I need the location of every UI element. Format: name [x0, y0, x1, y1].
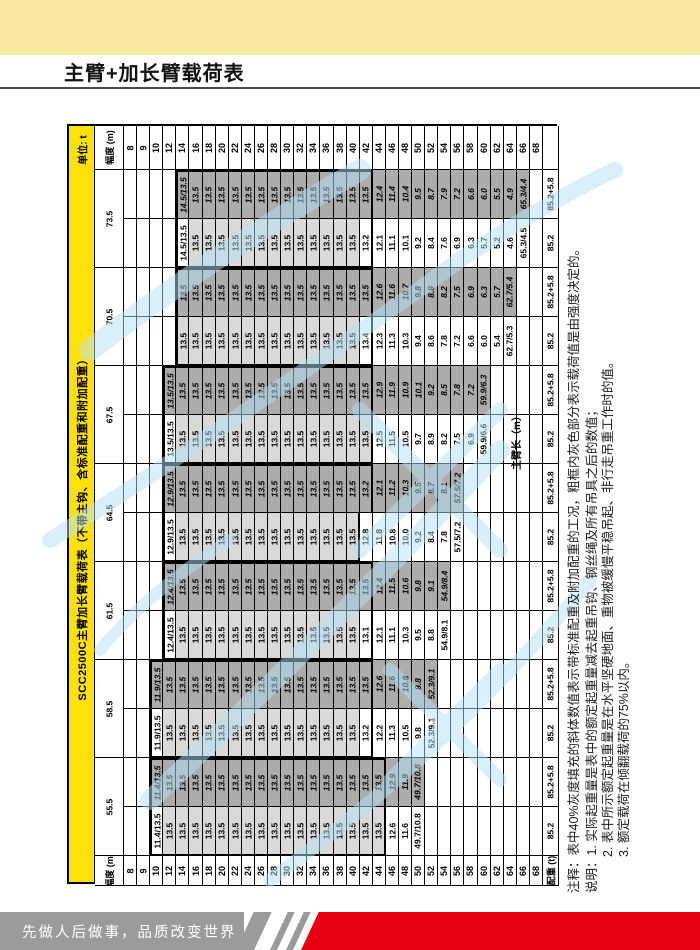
capacity-cell: 13.2 [360, 464, 373, 513]
capacity-cell: 13.5 [242, 562, 255, 611]
capacity-cell: 13.5 [334, 170, 347, 219]
capacity-cell: 11.9/13.5 [150, 660, 163, 709]
capacity-cell: 13.5 [281, 807, 294, 856]
capacity-cell: 12.6 [386, 807, 399, 856]
capacity-row-61.5-added-cw: 12.4/13.513.513.513.513.513.513.513.513.… [124, 562, 559, 611]
capacity-cell [530, 562, 543, 611]
capacity-cell: 13.5 [176, 562, 189, 611]
capacity-cell [137, 219, 150, 268]
capacity-cell: 49.7/10.8 [412, 758, 425, 807]
capacity-cell: 11.3 [386, 317, 399, 366]
boom-length-value: 58.5 [95, 660, 124, 758]
radius-value: 62 [491, 856, 504, 886]
capacity-cell [163, 317, 176, 366]
capacity-cell: 13.5 [203, 660, 216, 709]
capacity-cell: 52.3/9.1 [425, 660, 438, 709]
capacity-cell: 13.5 [360, 758, 373, 807]
radius-value: 52 [425, 856, 438, 886]
radius-value: 14 [176, 126, 189, 170]
capacity-cell: 13.5 [189, 709, 202, 758]
capacity-cell: 13.5 [268, 415, 281, 464]
radius-value: 24 [242, 856, 255, 886]
capacity-cell: 13.5 [229, 268, 242, 317]
capacity-cell: 13.5 [334, 709, 347, 758]
capacity-cell [438, 807, 451, 856]
capacity-cell: 13.5 [294, 366, 307, 415]
radius-value: 48 [399, 126, 412, 170]
capacity-cell: 13.5 [268, 366, 281, 415]
capacity-cell: 12.9/13.5 [163, 464, 176, 513]
capacity-cell: 6.6 [464, 170, 477, 219]
capacity-cell: 9.4 [412, 317, 425, 366]
capacity-cell [464, 513, 477, 562]
capacity-cell: 13.5 [203, 366, 216, 415]
capacity-cell: 13.5 [203, 611, 216, 660]
capacity-cell [451, 611, 464, 660]
capacity-cell [504, 562, 517, 611]
capacity-cell: 8.2 [438, 415, 451, 464]
capacity-cell [491, 807, 504, 856]
capacity-cell: 13.5 [176, 366, 189, 415]
capacity-cell: 11.2 [386, 464, 399, 513]
capacity-cell: 12.9 [373, 366, 386, 415]
capacity-cell: 57.5/7.2 [451, 464, 464, 513]
capacity-cell: 6.3 [464, 219, 477, 268]
capacity-cell: 13.5 [216, 268, 229, 317]
capacity-cell: 9.2 [425, 366, 438, 415]
capacity-cell: 13.5 [216, 317, 229, 366]
counterweight-value: 85.2 [543, 415, 559, 464]
load-chart-table: 单位: t SCC2500C主臂加长臂载荷表（不带主钩、含标准配重和附加配重） … [67, 124, 557, 884]
capacity-cell [530, 464, 543, 513]
capacity-cell: 13.5 [320, 758, 333, 807]
counterweight-value: 85.2+5.8 [543, 170, 559, 219]
capacity-grid: 8910121416182022242628303234363840424446… [124, 126, 559, 882]
capacity-cell [137, 317, 150, 366]
radius-value: 60 [478, 126, 491, 170]
capacity-cell [451, 807, 464, 856]
capacity-cell: 10.1 [399, 219, 412, 268]
capacity-cell: 13.5 [334, 317, 347, 366]
capacity-cell: 13.5 [255, 611, 268, 660]
capacity-cell: 13.5 [347, 366, 360, 415]
capacity-cell [150, 170, 163, 219]
capacity-cell [478, 709, 491, 758]
capacity-cell: 13.4 [360, 317, 373, 366]
capacity-cell: 13.5 [307, 513, 320, 562]
capacity-cell: 13.5 [255, 317, 268, 366]
radius-value: 40 [347, 856, 360, 886]
capacity-cell: 7.9 [438, 170, 451, 219]
capacity-cell: 13.5 [176, 317, 189, 366]
capacity-cell [530, 758, 543, 807]
capacity-cell: 5.7 [478, 219, 491, 268]
capacity-cell: 65.3/4.4 [517, 170, 530, 219]
capacity-cell: 10.5 [399, 709, 412, 758]
capacity-cell: 13.5 [242, 660, 255, 709]
radius-value: 16 [189, 856, 202, 886]
capacity-cell: 8.2 [438, 268, 451, 317]
radius-value: 62 [491, 126, 504, 170]
capacity-cell [124, 268, 137, 317]
capacity-cell: 13.5 [320, 415, 333, 464]
capacity-cell: 10.9 [399, 366, 412, 415]
capacity-cell: 13.5 [229, 464, 242, 513]
capacity-cell: 4.9 [504, 170, 517, 219]
capacity-cell [517, 660, 530, 709]
capacity-cell: 13.5 [281, 562, 294, 611]
boom-length-label: 主臂长（m） [506, 413, 524, 467]
capacity-cell: 13.5 [294, 170, 307, 219]
capacity-cell [491, 660, 504, 709]
capacity-cell [491, 611, 504, 660]
capacity-cell: 9.8 [412, 660, 425, 709]
capacity-cell: 13.5 [242, 464, 255, 513]
capacity-cell: 13.5 [347, 758, 360, 807]
capacity-cell: 13.5 [203, 807, 216, 856]
capacity-cell: 11.6 [386, 660, 399, 709]
capacity-cell [530, 170, 543, 219]
capacity-cell: 13.5 [242, 170, 255, 219]
counterweight-value: 85.2+5.8 [543, 758, 559, 807]
capacity-cell: 13.5 [189, 170, 202, 219]
capacity-cell: 13.5 [242, 758, 255, 807]
capacity-cell: 9.8 [412, 709, 425, 758]
capacity-cell: 13.5 [320, 660, 333, 709]
capacity-cell: 8.6 [425, 317, 438, 366]
capacity-cell [137, 170, 150, 219]
capacity-cell: 13.5 [281, 513, 294, 562]
capacity-cell [517, 709, 530, 758]
capacity-cell: 13.5 [216, 807, 229, 856]
capacity-cell: 12.4 [373, 170, 386, 219]
capacity-cell: 14.5/13.5 [176, 219, 189, 268]
radius-value: 56 [451, 856, 464, 886]
capacity-cell: 13.5 [229, 219, 242, 268]
capacity-cell: 7.2 [464, 366, 477, 415]
capacity-cell [530, 611, 543, 660]
capacity-cell: 13.5 [268, 464, 281, 513]
capacity-cell [150, 268, 163, 317]
radius-value: 60 [478, 856, 491, 886]
radius-header-row: 8910121416182022242628303234363840424446… [124, 856, 559, 886]
capacity-cell: 13.5 [216, 513, 229, 562]
capacity-cell [478, 660, 491, 709]
capacity-cell [137, 366, 150, 415]
capacity-cell [517, 562, 530, 611]
capacity-cell: 13.5 [176, 415, 189, 464]
capacity-cell: 13.5 [229, 415, 242, 464]
capacity-cell: 13.5 [163, 709, 176, 758]
capacity-cell: 13.5 [320, 513, 333, 562]
capacity-cell: 13.5 [242, 219, 255, 268]
capacity-cell: 11.4/13.5 [150, 807, 163, 856]
capacity-cell: 13.5 [242, 317, 255, 366]
capacity-cell [150, 464, 163, 513]
capacity-cell: 13.5 [176, 513, 189, 562]
capacity-cell [504, 464, 517, 513]
boom-length-value: 64.5 [95, 464, 124, 562]
capacity-cell: 13.5 [268, 807, 281, 856]
capacity-cell [530, 709, 543, 758]
capacity-cell: 12.6 [373, 268, 386, 317]
capacity-cell: 57.5/7.2 [451, 513, 464, 562]
capacity-cell [491, 415, 504, 464]
capacity-cell [137, 562, 150, 611]
capacity-cell: 5.7 [491, 268, 504, 317]
capacity-cell: 13.5 [294, 758, 307, 807]
capacity-cell: 12.5 [373, 415, 386, 464]
capacity-cell: 59.9/6.3 [478, 366, 491, 415]
capacity-cell: 13.5 [320, 611, 333, 660]
capacity-cell: 7.2 [451, 170, 464, 219]
capacity-cell: 13.5 [360, 807, 373, 856]
capacity-cell: 13.5 [268, 660, 281, 709]
counterweight-value: 85.2 [543, 219, 559, 268]
capacity-cell: 13.5 [320, 366, 333, 415]
capacity-cell: 13.5 [294, 464, 307, 513]
capacity-cell: 9.8 [412, 268, 425, 317]
capacity-cell [517, 464, 530, 513]
capacity-cell [150, 415, 163, 464]
capacity-cell: 12.4/13.5 [163, 611, 176, 660]
capacity-cell [504, 709, 517, 758]
radius-value: 22 [229, 856, 242, 886]
capacity-cell: 9.2 [412, 513, 425, 562]
capacity-cell: 13.5 [307, 170, 320, 219]
capacity-cell [425, 758, 438, 807]
boom-length-value: 61.5 [95, 562, 124, 660]
capacity-cell: 7.5 [451, 415, 464, 464]
capacity-cell: 11.9 [399, 758, 412, 807]
capacity-cell: 13.5 [347, 170, 360, 219]
capacity-cell: 11.4/13.5 [150, 758, 163, 807]
capacity-cell [464, 660, 477, 709]
capacity-cell: 13.5 [216, 415, 229, 464]
counterweight-value: 85.2 [543, 807, 559, 856]
capacity-cell: 13.5 [320, 562, 333, 611]
capacity-cell: 13.5 [281, 660, 294, 709]
capacity-cell [124, 758, 137, 807]
capacity-cell: 13.5 [307, 219, 320, 268]
radius-value: 68 [530, 856, 543, 886]
capacity-cell: 13.5 [189, 268, 202, 317]
capacity-cell: 13.5 [189, 219, 202, 268]
capacity-cell: 4.6 [504, 219, 517, 268]
radius-value: 58 [464, 856, 477, 886]
capacity-cell: 13.5 [334, 415, 347, 464]
capacity-cell: 12.9 [386, 758, 399, 807]
capacity-cell: 13.5 [203, 268, 216, 317]
capacity-cell: 13.5 [347, 611, 360, 660]
capacity-cell: 13.5 [203, 464, 216, 513]
radius-value: 48 [399, 856, 412, 886]
radius-value: 30 [281, 126, 294, 170]
capacity-cell: 12.1 [373, 219, 386, 268]
page-top-band [0, 0, 700, 55]
capacity-cell: 13.5 [307, 807, 320, 856]
capacity-cell: 65.3/4.5 [517, 219, 530, 268]
radius-value: 24 [242, 126, 255, 170]
radius-value: 28 [268, 856, 281, 886]
capacity-cell: 13.5 [294, 317, 307, 366]
capacity-cell [451, 758, 464, 807]
capacity-cell [425, 807, 438, 856]
capacity-cell: 7.5 [451, 268, 464, 317]
capacity-cell [451, 562, 464, 611]
capacity-cell: 11.5 [386, 562, 399, 611]
capacity-cell: 13.5 [294, 660, 307, 709]
capacity-cell: 13.5 [360, 660, 373, 709]
radius-value: 42 [360, 126, 373, 170]
capacity-cell: 13.5 [203, 562, 216, 611]
capacity-cell: 13.5 [307, 758, 320, 807]
page-title: 主臂+加长臂载荷表 [64, 57, 245, 86]
capacity-cell: 13.5 [268, 709, 281, 758]
capacity-cell [491, 709, 504, 758]
capacity-cell: 13.5 [334, 807, 347, 856]
radius-value: 16 [189, 126, 202, 170]
capacity-cell: 11.9/13.5 [150, 709, 163, 758]
radius-value: 64 [504, 126, 517, 170]
capacity-cell: 13.5 [255, 807, 268, 856]
capacity-cell: 13.5 [307, 562, 320, 611]
capacity-cell: 13.5 [189, 807, 202, 856]
boom-length-value: 70.5 [95, 268, 124, 366]
capacity-cell: 8.5 [438, 366, 451, 415]
capacity-cell: 13.5 [176, 758, 189, 807]
capacity-cell [124, 415, 137, 464]
capacity-cell: 8.9 [425, 415, 438, 464]
capacity-cell: 13.5 [189, 464, 202, 513]
capacity-cell: 13.5/13.5 [163, 415, 176, 464]
capacity-cell [530, 317, 543, 366]
capacity-row-55.5-std: 11.4/13.513.513.513.513.513.513.513.513.… [124, 807, 559, 856]
capacity-cell: 13.5 [229, 317, 242, 366]
capacity-cell: 13.5 [176, 268, 189, 317]
radius-value: 38 [334, 856, 347, 886]
capacity-cell: 13.5 [203, 317, 216, 366]
capacity-cell: 8.9 [425, 268, 438, 317]
capacity-cell [504, 807, 517, 856]
capacity-cell [530, 807, 543, 856]
footer-bar: 先做人后做事，品质改变世界 [0, 912, 700, 950]
radius-value: 58 [464, 126, 477, 170]
capacity-cell: 13.5 [203, 219, 216, 268]
capacity-row-67.5-std: 13.5/13.513.513.513.513.513.513.513.513.… [124, 415, 559, 464]
capacity-cell [530, 660, 543, 709]
capacity-cell: 13.5 [229, 513, 242, 562]
capacity-cell [438, 709, 451, 758]
capacity-cell: 6.0 [478, 170, 491, 219]
capacity-cell: 12.4/13.5 [163, 562, 176, 611]
capacity-cell: 11.4 [386, 170, 399, 219]
capacity-cell [530, 415, 543, 464]
capacity-cell [478, 562, 491, 611]
capacity-cell [124, 562, 137, 611]
capacity-cell [124, 513, 137, 562]
capacity-cell: 13.5 [203, 170, 216, 219]
capacity-cell: 10.5 [399, 415, 412, 464]
capacity-cell: 13.5 [373, 807, 386, 856]
capacity-cell [504, 611, 517, 660]
capacity-cell: 10.3 [399, 464, 412, 513]
capacity-cell: 13.5 [268, 170, 281, 219]
capacity-cell: 13.5 [320, 317, 333, 366]
capacity-cell: 13.5 [347, 268, 360, 317]
capacity-cell: 9.5 [412, 464, 425, 513]
capacity-cell: 13.5 [334, 464, 347, 513]
capacity-cell: 13.5 [268, 562, 281, 611]
radius-value: 54 [438, 856, 451, 886]
capacity-cell: 13.5 [255, 464, 268, 513]
capacity-cell: 13.5 [294, 415, 307, 464]
radius-value: 46 [386, 126, 399, 170]
capacity-cell: 13.5 [334, 268, 347, 317]
note-line-4: 3. 额定载荷在倾翻载荷的75%以内。 [613, 656, 632, 857]
capacity-cell: 10.3 [399, 611, 412, 660]
table-title-strip: 单位: t SCC2500C主臂加长臂载荷表（不带主钩、含标准配重和附加配重） [69, 126, 95, 882]
capacity-cell: 13.5 [347, 317, 360, 366]
capacity-cell: 13.5 [294, 219, 307, 268]
capacity-cell: 13.5 [373, 758, 386, 807]
radius-value: 8 [124, 126, 137, 170]
radius-value: 44 [373, 856, 386, 886]
capacity-cell: 13.5 [307, 709, 320, 758]
capacity-cell: 13.5 [255, 562, 268, 611]
radius-value: 30 [281, 856, 294, 886]
capacity-cell: 13.5 [347, 415, 360, 464]
capacity-cell [478, 758, 491, 807]
radius-value: 36 [320, 856, 333, 886]
capacity-cell: 13.5 [307, 317, 320, 366]
radius-value: 26 [255, 126, 268, 170]
capacity-cell: 10.8 [386, 513, 399, 562]
capacity-cell: 13.5 [281, 464, 294, 513]
capacity-cell: 13.5 [242, 513, 255, 562]
capacity-cell: 5.2 [491, 219, 504, 268]
capacity-cell [464, 611, 477, 660]
capacity-cell: 62.7/5.4 [504, 268, 517, 317]
boom-length-value: 55.5 [95, 758, 124, 856]
capacity-cell: 11.6 [399, 807, 412, 856]
capacity-cell [491, 464, 504, 513]
footer-red-block [380, 912, 700, 950]
capacity-cell [517, 807, 530, 856]
capacity-cell: 13.5 [268, 758, 281, 807]
capacity-cell: 8.4 [425, 513, 438, 562]
capacity-cell: 7.2 [451, 317, 464, 366]
capacity-cell: 13.5 [281, 317, 294, 366]
capacity-cell [150, 562, 163, 611]
capacity-cell: 14.5/13.5 [176, 170, 189, 219]
capacity-cell: 13.5 [242, 268, 255, 317]
capacity-cell: 13.5 [334, 660, 347, 709]
capacity-cell: 13.5 [163, 758, 176, 807]
radius-value: 66 [517, 856, 530, 886]
capacity-cell: 13.5 [307, 415, 320, 464]
capacity-cell [504, 758, 517, 807]
capacity-cell: 13.5 [347, 709, 360, 758]
capacity-cell: 13.5 [203, 415, 216, 464]
capacity-cell: 7.8 [438, 513, 451, 562]
capacity-cell: 49.7/10.8 [412, 807, 425, 856]
radius-header: 幅度 (m) [95, 856, 124, 886]
capacity-cell [150, 366, 163, 415]
capacity-cell [124, 611, 137, 660]
capacity-cell [504, 660, 517, 709]
capacity-cell: 13.5 [281, 219, 294, 268]
